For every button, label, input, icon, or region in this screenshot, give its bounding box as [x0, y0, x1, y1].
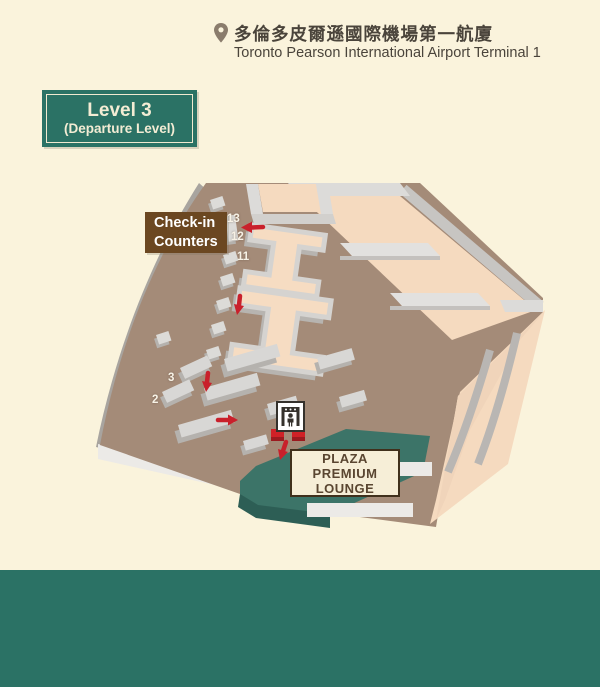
- counter-number-2: 2: [152, 394, 158, 406]
- counter-number-11: 11: [237, 251, 249, 263]
- counter-number-12: 12: [231, 231, 244, 243]
- lounge-label-line2: PREMIUM: [313, 466, 378, 481]
- counter-number-3: 3: [168, 372, 174, 384]
- counter-number-13: 13: [227, 213, 240, 225]
- lounge-label-line3: LOUNGE: [316, 481, 375, 496]
- plaza-premium-lounge-label: PLAZA PREMIUM LOUNGE: [290, 449, 400, 497]
- checkin-counters-label: Check-in Counters: [145, 212, 227, 253]
- top-corridor: [246, 184, 336, 224]
- page: 多倫多皮爾遜國際機場第一航廈 Toronto Pearson Internati…: [0, 0, 600, 687]
- lounge-label-line1: PLAZA: [322, 451, 368, 466]
- legend-bar: 安檢 X-RAY Security Check: [0, 570, 600, 687]
- checkin-label-line2: Counters: [154, 233, 227, 252]
- checkin-label-line1: Check-in: [154, 214, 227, 233]
